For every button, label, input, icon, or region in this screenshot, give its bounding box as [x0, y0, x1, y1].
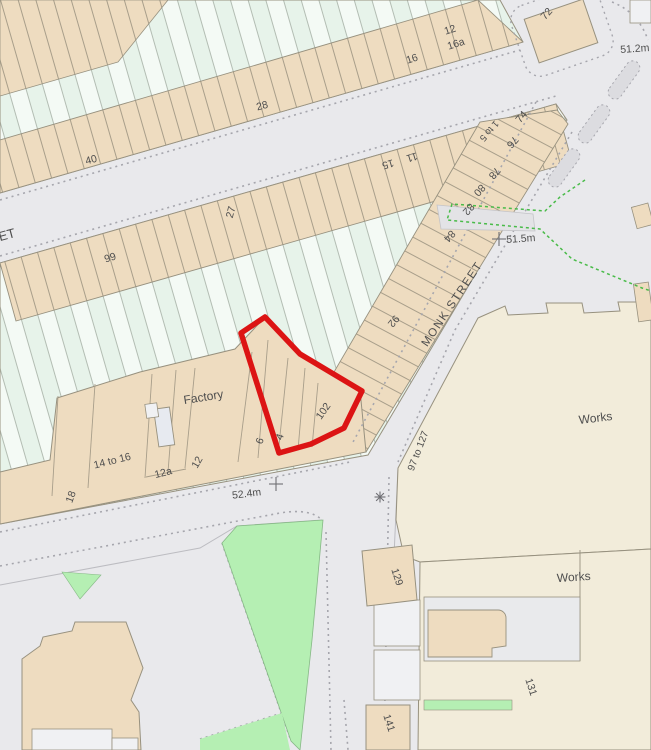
map-label: 51.2m: [620, 42, 650, 56]
corner-building-ne: [630, 0, 651, 23]
map-label: 51.5m: [506, 232, 536, 246]
os-map: ET4028161216a7266271511741 to 5767880828…: [0, 0, 651, 750]
tank-block-2: [374, 650, 420, 700]
tank-block-1: [374, 600, 420, 646]
map-label: Works: [556, 569, 591, 585]
building-129: [362, 545, 417, 606]
works-green-strip: [424, 700, 512, 710]
junction-star-symbol: [375, 492, 386, 503]
map-canvas: ET4028161216a7266271511741 to 5767880828…: [0, 0, 651, 750]
